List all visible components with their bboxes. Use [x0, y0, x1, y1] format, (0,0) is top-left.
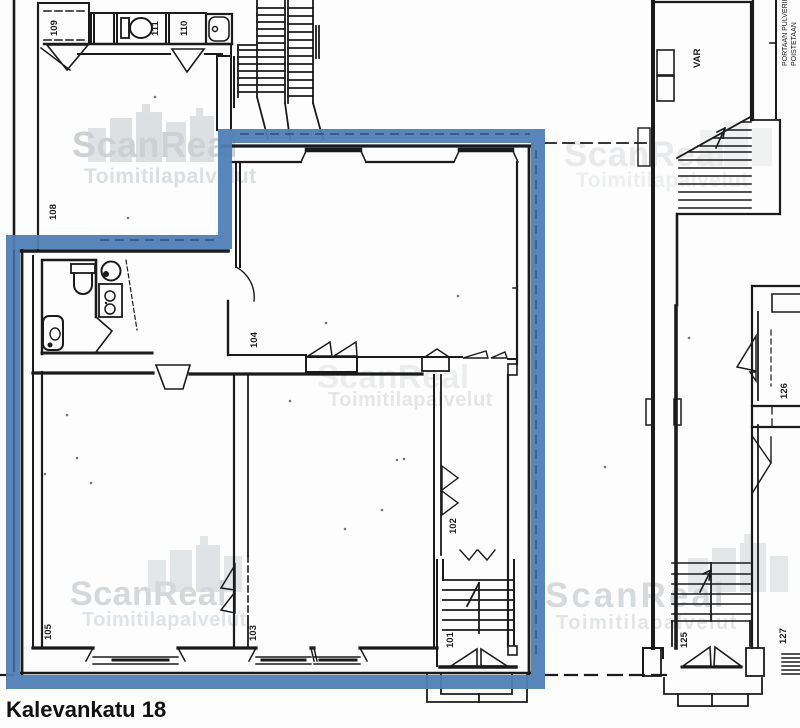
svg-text:108: 108: [48, 204, 59, 220]
svg-text:POISTETAAN: POISTETAAN: [791, 22, 798, 66]
svg-text:109: 109: [49, 20, 60, 36]
svg-text:Toimitilapalvelut: Toimitilapalvelut: [576, 169, 749, 192]
svg-text:103: 103: [248, 625, 259, 641]
svg-text:ScanReal: ScanReal: [72, 124, 238, 165]
svg-text:VAR: VAR: [692, 49, 703, 68]
svg-text:Toimitilapalvelut: Toimitilapalvelut: [82, 609, 247, 631]
svg-text:104: 104: [249, 331, 260, 348]
svg-text:111: 111: [150, 20, 161, 36]
svg-text:Kalevankatu 18: Kalevankatu 18: [6, 697, 166, 722]
svg-text:126: 126: [779, 383, 790, 399]
svg-text:ScanReal: ScanReal: [545, 576, 727, 615]
svg-text:127: 127: [778, 628, 789, 644]
svg-text:ScanReal: ScanReal: [70, 575, 227, 613]
svg-text:110: 110: [179, 21, 190, 36]
svg-text:102: 102: [448, 518, 459, 534]
svg-text:125: 125: [679, 631, 690, 648]
svg-text:Toimitilapalvelut: Toimitilapalvelut: [328, 389, 493, 411]
svg-text:101: 101: [445, 631, 456, 648]
svg-text:PORTAAN PULVERIK.: PORTAAN PULVERIK.: [782, 0, 789, 66]
svg-text:105: 105: [43, 623, 54, 640]
